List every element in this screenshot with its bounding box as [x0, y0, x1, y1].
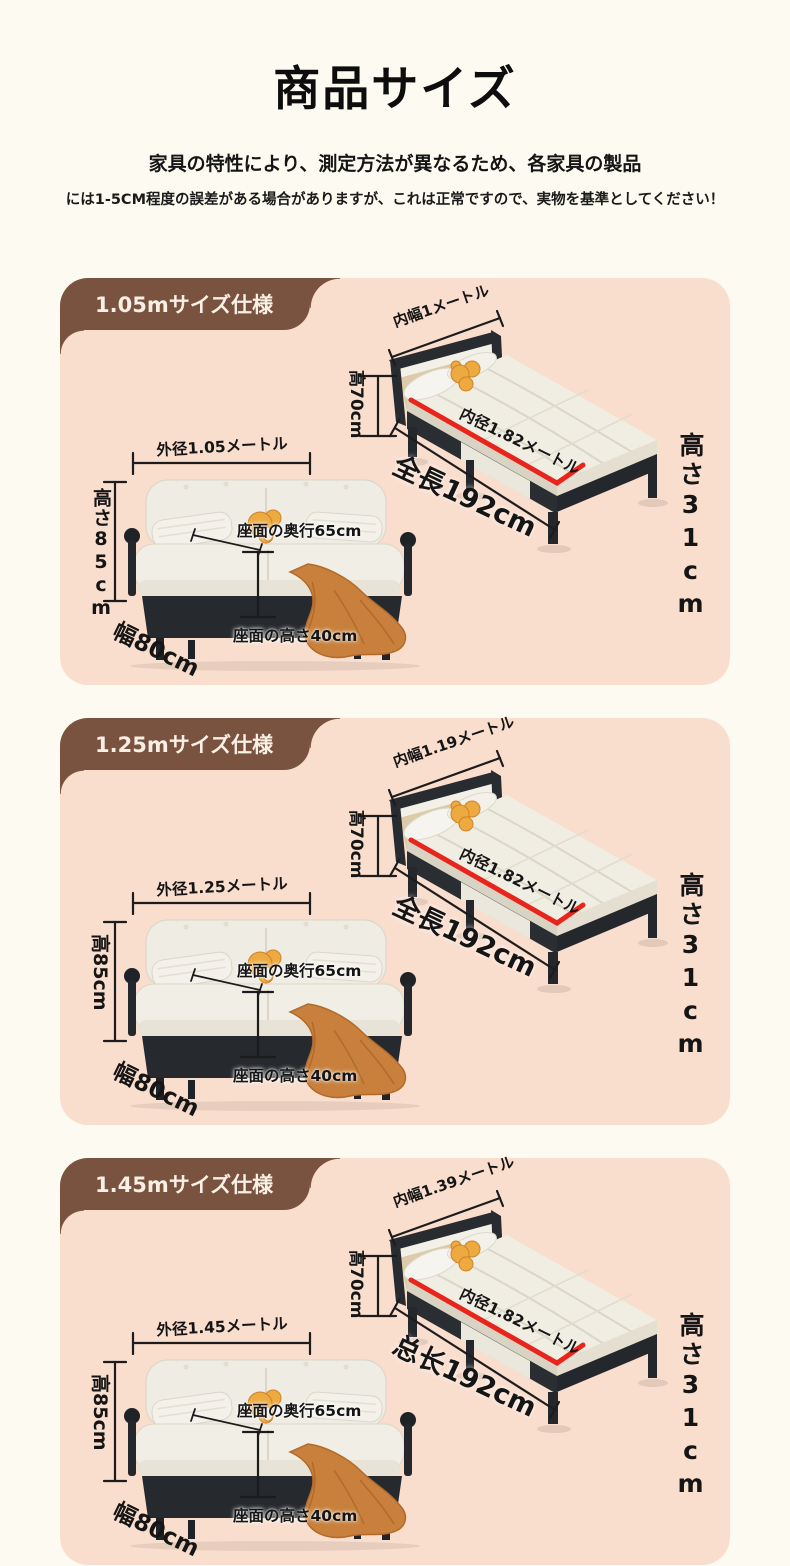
sofa-seat-height-label: 座面の高さ40cm [233, 624, 357, 646]
sofa-seat-height-label: 座面の高さ40cm [233, 1064, 357, 1086]
size-tab: 1.05mサイズ仕様 [60, 278, 310, 330]
size-tab: 1.45mサイズ仕様 [60, 1158, 310, 1210]
page-title: 商品サイズ [0, 50, 790, 119]
size-tab-label: 1.05mサイズ仕様 [95, 289, 273, 319]
sofa-seat-depth-label: 座面の奥行65cm [237, 959, 361, 981]
sofa-height-label: 高さ85cm [88, 488, 115, 620]
sofa-height-label: 高85cm [88, 1374, 115, 1451]
size-tab: 1.25mサイズ仕様 [60, 718, 310, 770]
sofa-seat-depth-label: 座面の奥行65cm [237, 1399, 361, 1421]
subtitle-line1: 家具の特性により、測定方法が異なるため、各家具の製品 [0, 149, 790, 176]
sofa-diagram: 外径1.05メートル 高さ85cm 座面の奥行65cm 座面の高さ40cm 幅8… [90, 426, 500, 682]
sofa-height-label: 高85cm [88, 934, 115, 1011]
sofa-seat-height-label: 座面の高さ40cm [233, 1504, 357, 1526]
page-header: 商品サイズ 家具の特性により、測定方法が異なるため、各家具の製品 には1-5CM… [0, 0, 790, 278]
bed-frame-height-label: 高さ31cm [672, 432, 708, 622]
size-spec-panel: 1.05mサイズ仕様 [60, 278, 730, 685]
bed-frame-height-label: 高さ31cm [672, 1312, 708, 1502]
size-spec-panel: 1.45mサイズ仕様 [60, 1158, 730, 1565]
size-spec-panel: 1.25mサイズ仕様 [60, 718, 730, 1125]
sofa-diagram: 外径1.25メートル 高85cm 座面の奥行65cm 座面の高さ40cm 幅80… [90, 866, 500, 1122]
sofa-seat-depth-label: 座面の奥行65cm [237, 519, 361, 541]
bed-frame-height-label: 高さ31cm [672, 872, 708, 1062]
sofa-diagram: 外径1.45メートル 高85cm 座面の奥行65cm 座面の高さ40cm 幅80… [90, 1306, 500, 1562]
size-spec-sections: 1.05mサイズ仕様 [60, 278, 730, 1565]
size-tab-label: 1.25mサイズ仕様 [95, 729, 273, 759]
size-tab-label: 1.45mサイズ仕様 [95, 1169, 273, 1199]
subtitle-line2: には1-5CM程度の誤差がある場合がありますが、これは正常ですので、実物を基準と… [0, 188, 790, 209]
